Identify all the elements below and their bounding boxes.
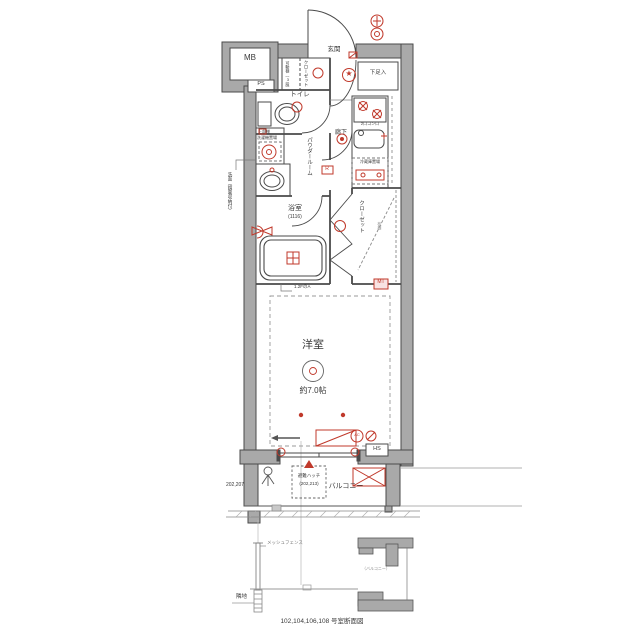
- room-size-label: 約7.0帖: [299, 387, 326, 396]
- symbol-room-dot1: [299, 413, 303, 417]
- mt-label: MT: [377, 280, 384, 286]
- closet-shelf-label: 枕棚: [377, 222, 381, 238]
- hatch-support: [272, 505, 281, 511]
- sink-faucet: [359, 131, 364, 136]
- plant-stems: [262, 475, 274, 486]
- wall-top-left-seg: [278, 44, 308, 58]
- hatch-label: 避難ハッチ: [298, 474, 321, 479]
- hatch-triangle-icon: [304, 460, 314, 468]
- entry-star-icon: ★: [345, 70, 352, 79]
- symbol-room-rect-diag: [316, 430, 356, 446]
- symbol-hall-light: [335, 221, 346, 232]
- symbol-fridge-knob2: [377, 173, 381, 177]
- symbol-room-dot2: [341, 413, 345, 417]
- ceiling-dashed-line: [270, 296, 390, 446]
- fence-label: メッシュフェンス: [267, 541, 303, 546]
- symbol-sink-outlet: [381, 133, 387, 139]
- plant-icon: [264, 467, 272, 475]
- washbasin-note: 洗面（鏡裏収納付）: [227, 172, 232, 234]
- balcony: [226, 460, 522, 517]
- symbol-toilet-light: [292, 102, 302, 112]
- balcony-label: バルコニー: [329, 483, 364, 491]
- section-bottom-slab: [358, 600, 413, 611]
- section-top-slab: [358, 538, 413, 548]
- window: [277, 450, 360, 461]
- symbol-corridor-light-dot: [341, 138, 344, 141]
- section-caption: 102,104,106,108 号室断面図: [280, 618, 363, 625]
- section-column: [386, 544, 398, 566]
- room-label: 洋室: [302, 339, 324, 351]
- ceiling-note: 1.2FのA: [294, 285, 311, 290]
- wall-bottom-left-seg: [240, 450, 280, 464]
- powder-room-label: パウダールーム: [306, 137, 312, 195]
- ceiling-light: [303, 361, 324, 382]
- corridor-label: 廊下: [335, 130, 347, 137]
- symbol-closet-light: [313, 68, 323, 78]
- kitchen-counter: [352, 96, 388, 188]
- floorplan-page: MB PS 玄関 下足入 クローゼット 可動棚（3段） トイレ パウダールーム …: [0, 0, 640, 640]
- symbol-fridge-knob1: [361, 173, 365, 177]
- retaining-post: [254, 590, 262, 612]
- toilet-label: トイレ: [290, 91, 310, 98]
- symbol-circle-top2: [371, 28, 383, 40]
- adjacent-land-label: 隣地: [236, 594, 247, 600]
- section-balcony-note: （バルコニー）: [362, 567, 390, 571]
- symbol-fridge: [356, 170, 384, 180]
- retaining-rungs: [254, 594, 262, 608]
- ps-label: PS: [257, 81, 264, 87]
- ceiling-light-center: [310, 368, 317, 375]
- wall-right: [401, 44, 413, 466]
- symbol-outlet-slash: [367, 432, 375, 440]
- stove-note: 2口コンロ: [361, 122, 379, 126]
- symbol-washer-inner: [267, 150, 272, 155]
- escape-arrow-head: [271, 435, 278, 441]
- washbasin-bowl-inner: [264, 175, 280, 187]
- r-mark-label: R: [325, 167, 329, 173]
- kitchen: [352, 96, 392, 188]
- symbol-circle-top2-glyph: [375, 32, 380, 37]
- fence-post: [256, 543, 260, 590]
- ground-hatch: [236, 511, 410, 517]
- left-numbers: 202,207: [226, 483, 244, 489]
- hs-label: HS: [373, 446, 381, 452]
- shoe-box-label: 下足入: [370, 70, 387, 76]
- floorplan-linework: [0, 0, 640, 640]
- ceiling-note-leader: [281, 284, 292, 291]
- symbol-bath-drain-cross: [287, 252, 299, 264]
- bathroom-size: (1116): [288, 215, 302, 221]
- upper-shelf-label: 上部棚: [258, 130, 270, 134]
- closet-label: クローゼット: [358, 200, 364, 272]
- washer-label: 洗濯機置場: [257, 136, 277, 140]
- symbol-washer: [262, 145, 276, 159]
- neighbor-balcony-lines: [400, 468, 522, 506]
- balcony-wall-right: [386, 464, 400, 506]
- mb-label: MB: [244, 54, 256, 63]
- fridge-label: 冷蔵庫置場: [360, 160, 380, 164]
- symbol-burner-1-flame: [359, 102, 367, 110]
- bathroom-label: 浴室: [288, 205, 302, 213]
- entrance-label: 玄関: [328, 46, 341, 53]
- balcony-wall-left: [244, 464, 258, 506]
- entrance-closet-label: クローゼット: [303, 60, 308, 90]
- toilet-door-swing: [302, 105, 330, 133]
- entrance-closet-shelf-note: 可動棚（3段）: [285, 61, 289, 91]
- toilet-tank: [258, 102, 271, 126]
- ac-label: AC: [354, 433, 360, 437]
- closet-folding-door: [330, 194, 352, 276]
- stove: [354, 98, 386, 122]
- section-slab-lip: [359, 548, 373, 554]
- symbol-burner-2-flame: [373, 110, 381, 118]
- hatch-numbers: (202,213): [299, 482, 318, 487]
- wall-left: [244, 86, 256, 466]
- toilet-fixture: [258, 102, 299, 126]
- symbol-circle-top1-glyph: [373, 16, 381, 26]
